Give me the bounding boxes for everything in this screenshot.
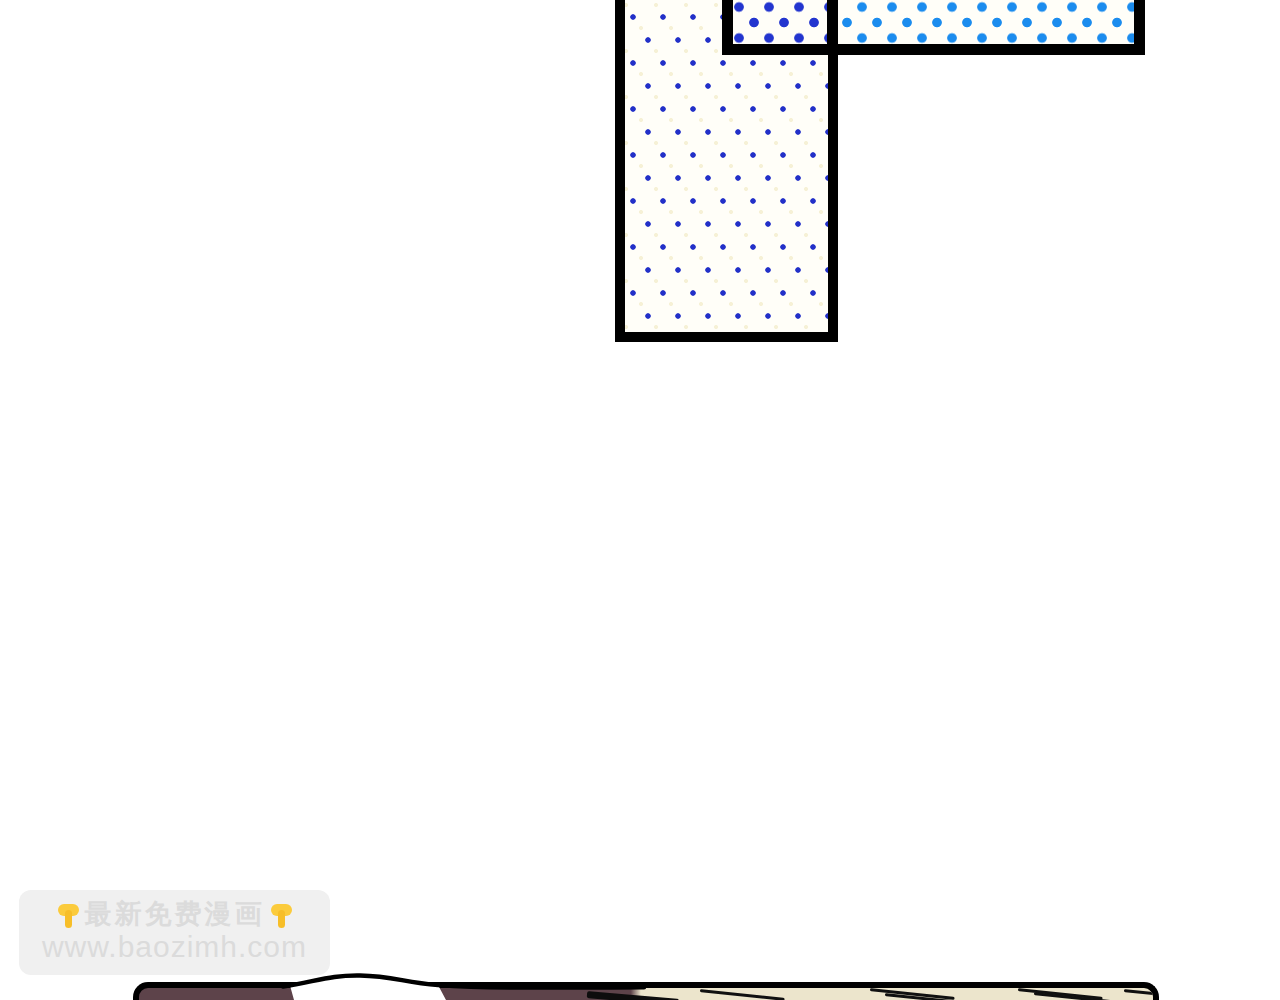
point-down-icon (269, 902, 294, 929)
halftone-dark-segment (733, 0, 828, 44)
panel-border-overlay (827, 0, 838, 55)
watermark-line1: 最新免费漫画 (56, 900, 294, 930)
watermark-text-cn: 最新免费漫画 (85, 900, 265, 930)
speech-bubble-top (280, 972, 650, 1000)
comic-page: 最新免费漫画 www.baozimh.com (0, 0, 1280, 1000)
point-down-icon (56, 902, 81, 929)
watermark-url: www.baozimh.com (42, 930, 307, 965)
hatch-line (700, 989, 785, 1000)
watermark-badge: 最新免费漫画 www.baozimh.com (19, 890, 330, 975)
hatch-line (1124, 989, 1159, 999)
comic-panel-horizontal-halftone (722, 0, 1145, 55)
